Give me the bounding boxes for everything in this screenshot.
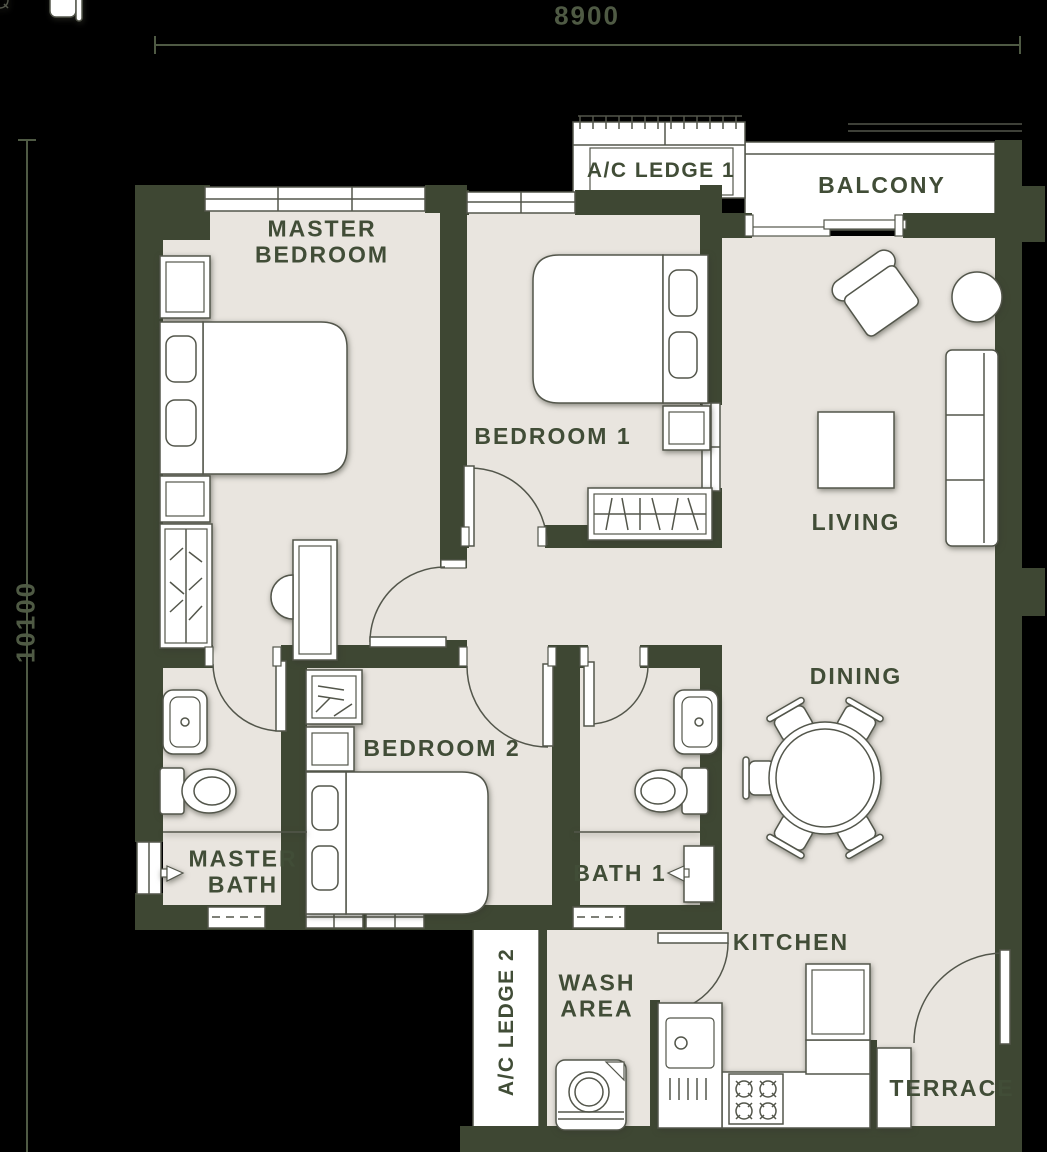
sofa	[946, 350, 998, 546]
room-label-wash-area: WASH AREA	[559, 970, 636, 1022]
dimension-height-label: 10100	[11, 581, 40, 663]
wash-area-fixtures	[556, 1060, 626, 1130]
side-table	[952, 272, 1002, 322]
wardrobe-bedroom1	[588, 488, 712, 540]
bed-bedroom2	[306, 772, 488, 914]
window-master-bedroom-top	[205, 187, 425, 211]
bed-master	[160, 322, 347, 474]
nightstand	[306, 727, 354, 771]
desk	[293, 540, 337, 660]
wardrobe-master	[160, 524, 212, 648]
bed-bedroom1	[533, 255, 708, 403]
room-label-bedroom-1: BEDROOM 1	[474, 424, 631, 450]
window-master-bath-left	[137, 842, 161, 894]
window-bedroom1-top	[467, 192, 575, 213]
louver-window-master-bath	[208, 907, 265, 928]
room-label-ac-ledge-1: A/C LEDGE 1	[587, 159, 735, 183]
toilet	[160, 768, 236, 814]
nightstand	[160, 476, 210, 522]
floor-plan: 8900 10100 A/C LEDGE 1 BALCONY MASTER BE…	[0, 0, 1047, 1152]
dining-table	[769, 722, 881, 834]
washing-machine	[556, 1060, 626, 1130]
toilet	[635, 768, 708, 814]
room-label-bedroom-2: BEDROOM 2	[363, 736, 520, 762]
louver-window-bath1	[573, 907, 625, 928]
room-label-master-bath: MASTER BATH	[188, 846, 297, 898]
room-label-terrace: TERRACE	[889, 1076, 1014, 1102]
room-label-living: LIVING	[812, 510, 901, 536]
nightstand	[160, 256, 210, 318]
fridge	[806, 964, 870, 1040]
dimension-width-label: 8900	[554, 1, 620, 30]
sink	[674, 690, 718, 754]
room-label-kitchen: KITCHEN	[733, 930, 849, 956]
room-label-balcony: BALCONY	[818, 173, 946, 199]
wardrobe-bedroom2	[306, 670, 362, 724]
room-label-bath-1: BATH 1	[573, 861, 666, 887]
room-label-dining: DINING	[810, 664, 903, 690]
room-label-ac-ledge-2: A/C LEDGE 2	[495, 948, 519, 1096]
sink	[163, 690, 207, 754]
nightstand	[663, 406, 710, 450]
kitchen-sink-unit	[658, 1003, 722, 1128]
room-label-master-bedroom: MASTER BEDROOM	[255, 216, 389, 268]
coffee-table	[818, 412, 894, 488]
